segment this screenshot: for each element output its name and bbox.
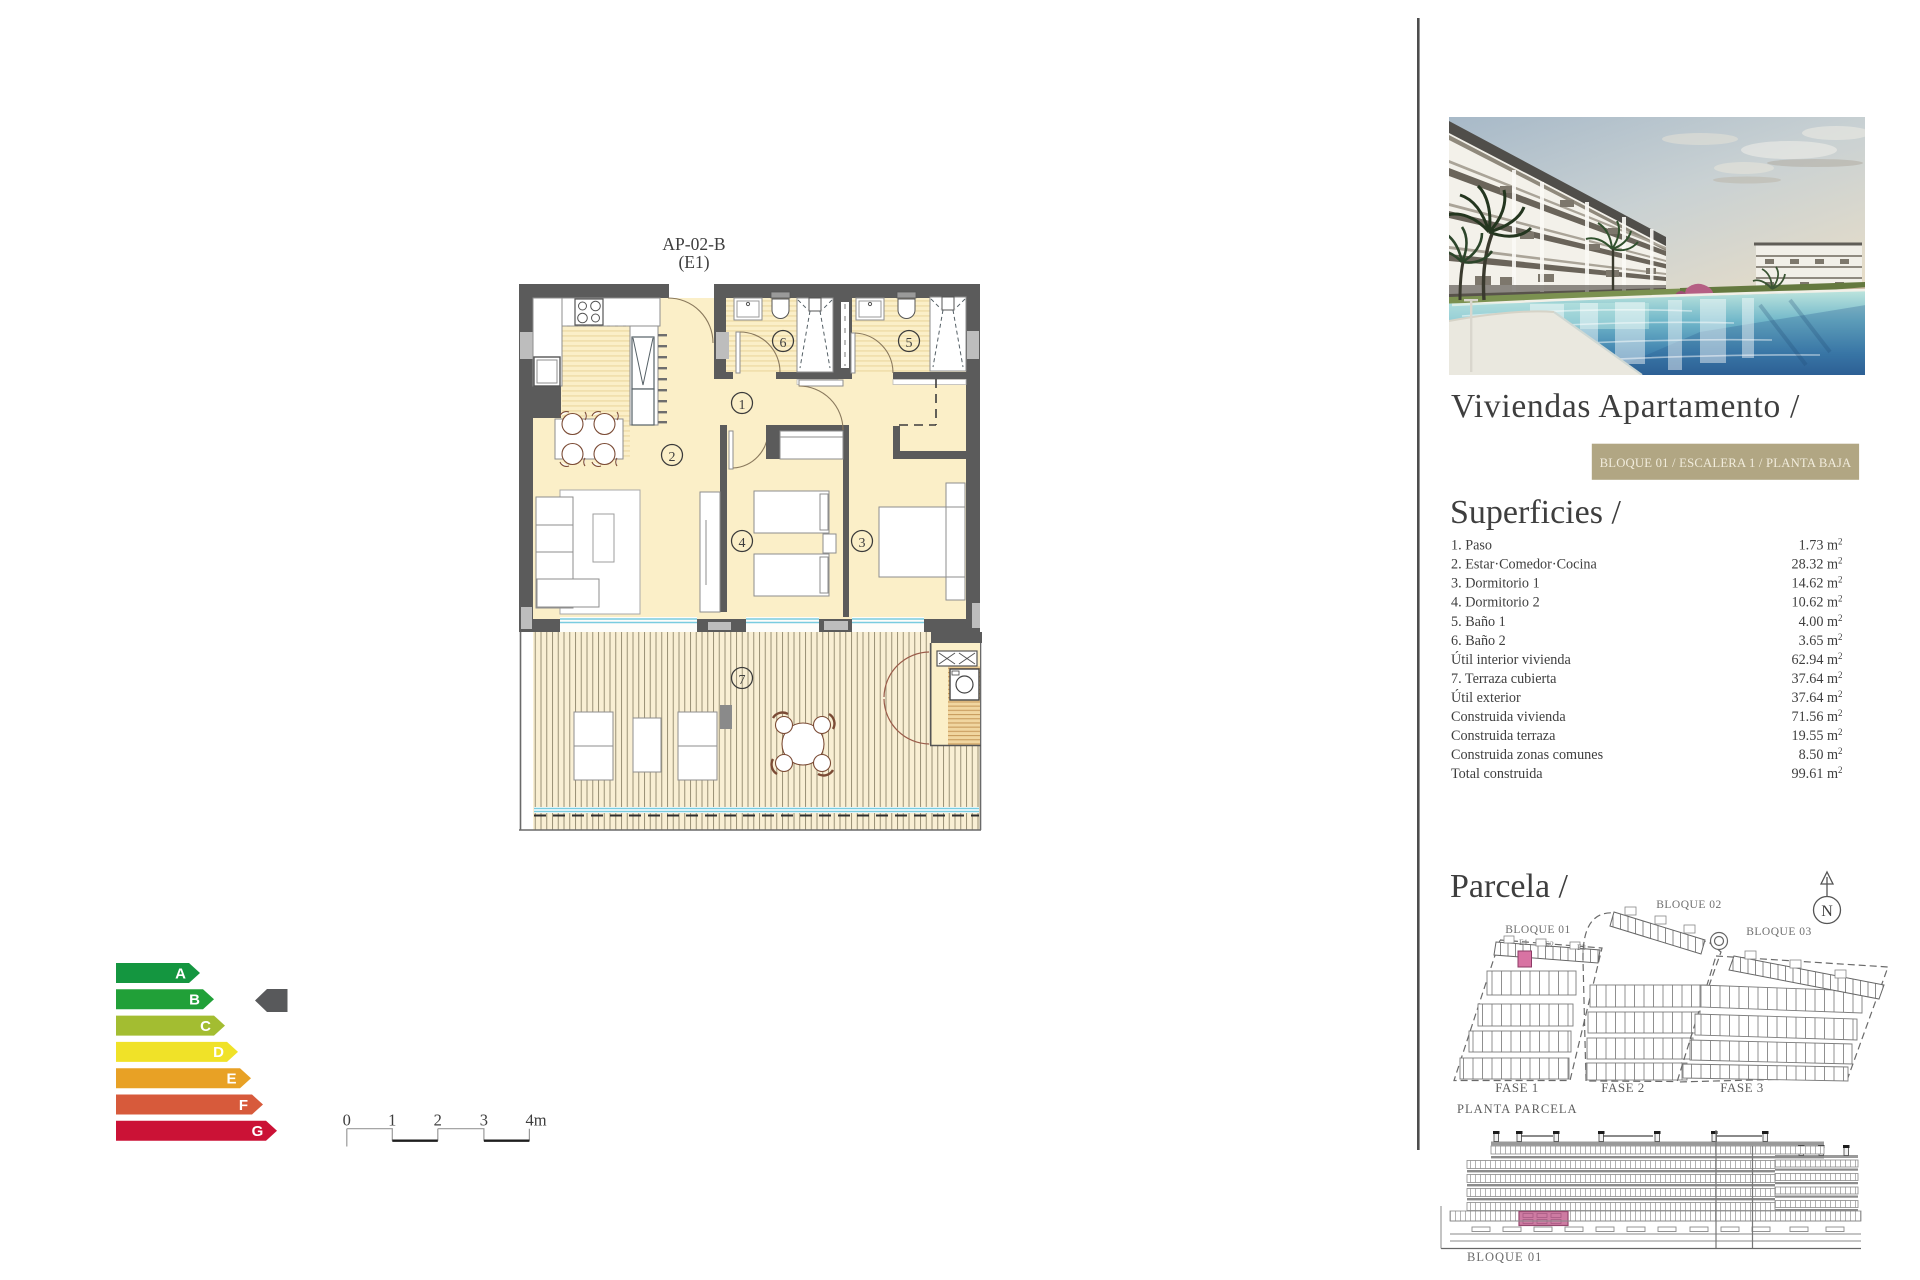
svg-text:N: N [1821,903,1833,920]
svg-text:2: 2 [1838,670,1843,680]
svg-text:10.62 m: 10.62 m [1791,595,1838,611]
svg-text:4: 4 [739,536,746,551]
svg-text:2: 2 [434,1111,442,1130]
svg-text:FASE 3: FASE 3 [1720,1080,1764,1095]
svg-text:Construida vivienda: Construida vivienda [1451,709,1566,725]
svg-text:B: B [189,992,200,1009]
svg-text:7: 7 [739,673,746,688]
svg-text:5. Baño 1: 5. Baño 1 [1451,614,1506,630]
svg-text:AP-02-B: AP-02-B [662,234,725,254]
svg-text:4m: 4m [525,1111,546,1130]
svg-text:BLOQUE 01 / ESCALERA 1 / PLANT: BLOQUE 01 / ESCALERA 1 / PLANTA BAJA [1600,456,1852,470]
svg-text:3. Dormitorio 1: 3. Dormitorio 1 [1451,576,1540,592]
svg-text:2: 2 [1838,746,1843,756]
svg-text:3.65 m: 3.65 m [1799,633,1838,649]
svg-text:6: 6 [780,336,787,351]
svg-text:2: 2 [1838,727,1843,737]
svg-text:E3: E3 [1577,943,1586,952]
svg-text:1. Paso: 1. Paso [1451,538,1492,554]
svg-text:2: 2 [1838,632,1843,642]
svg-text:(E1): (E1) [678,252,709,272]
svg-text:E2: E2 [1545,940,1554,949]
svg-text:E1: E1 [1519,938,1528,947]
svg-text:2: 2 [1838,765,1843,775]
svg-text:2: 2 [1838,651,1843,661]
svg-text:2: 2 [669,450,676,465]
svg-text:5: 5 [906,336,913,351]
svg-text:PLANTA PARCELA: PLANTA PARCELA [1457,1102,1578,1116]
svg-text:4. Dormitorio 2: 4. Dormitorio 2 [1451,595,1540,611]
svg-text:2: 2 [1838,537,1843,547]
svg-text:1.73 m: 1.73 m [1799,538,1838,554]
svg-text:19.55 m: 19.55 m [1791,728,1838,744]
svg-text:D: D [213,1044,224,1061]
svg-text:Parcela /: Parcela / [1450,868,1569,905]
svg-text:99.61 m: 99.61 m [1791,766,1838,782]
svg-text:F: F [239,1097,248,1114]
svg-text:2. Estar·Comedor·Cocina: 2. Estar·Comedor·Cocina [1451,557,1597,573]
svg-text:3: 3 [480,1111,488,1130]
svg-text:Construida terraza: Construida terraza [1451,728,1556,744]
svg-text:A: A [175,965,186,982]
svg-text:1: 1 [388,1111,396,1130]
svg-text:G: G [252,1123,264,1140]
svg-text:2: 2 [1838,556,1843,566]
svg-text:E: E [226,1071,236,1088]
svg-text:BLOQUE 03: BLOQUE 03 [1746,926,1812,938]
svg-text:37.64 m: 37.64 m [1791,671,1838,687]
svg-text:2: 2 [1838,594,1843,604]
svg-text:Superficies /: Superficies / [1450,494,1621,531]
svg-text:28.32 m: 28.32 m [1791,557,1838,573]
svg-text:3: 3 [859,536,866,551]
svg-text:FASE 2: FASE 2 [1601,1080,1645,1095]
svg-text:C: C [200,1018,211,1035]
svg-text:4.00 m: 4.00 m [1799,614,1838,630]
svg-text:1: 1 [739,398,746,413]
svg-text:6. Baño 2: 6. Baño 2 [1451,633,1506,649]
svg-text:Viviendas Apartamento /: Viviendas Apartamento / [1451,388,1800,425]
svg-text:14.62 m: 14.62 m [1791,576,1838,592]
svg-text:BLOQUE 02: BLOQUE 02 [1656,899,1722,911]
svg-text:0: 0 [343,1111,351,1130]
svg-text:BLOQUE 01: BLOQUE 01 [1467,1250,1542,1264]
svg-text:71.56 m: 71.56 m [1791,709,1838,725]
svg-text:2: 2 [1838,613,1843,623]
svg-text:FASE 1: FASE 1 [1495,1080,1539,1095]
svg-text:Total construida: Total construida [1451,766,1543,782]
svg-text:62.94 m: 62.94 m [1791,652,1838,668]
svg-text:Útil interior vivienda: Útil interior vivienda [1451,651,1571,668]
svg-text:2: 2 [1838,708,1843,718]
svg-text:37.64 m: 37.64 m [1791,690,1838,706]
svg-text:2: 2 [1838,575,1843,585]
svg-text:7. Terraza cubierta: 7. Terraza cubierta [1451,671,1557,687]
svg-text:Útil exterior: Útil exterior [1451,689,1521,706]
svg-text:BLOQUE 01: BLOQUE 01 [1505,924,1571,936]
svg-text:2: 2 [1838,689,1843,699]
svg-text:8.50 m: 8.50 m [1799,747,1838,763]
svg-text:Construida zonas comunes: Construida zonas comunes [1451,747,1604,763]
